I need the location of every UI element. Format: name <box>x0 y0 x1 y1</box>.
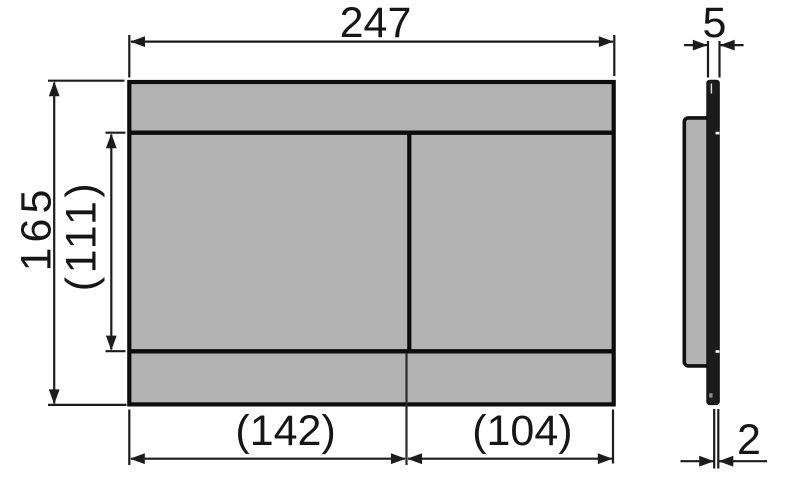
svg-text:(142): (142) <box>235 407 335 455</box>
svg-text:(104): (104) <box>472 407 572 455</box>
svg-text:(111): (111) <box>58 180 106 292</box>
svg-text:5: 5 <box>703 0 727 47</box>
svg-text:165: 165 <box>13 185 61 272</box>
svg-text:247: 247 <box>340 0 412 47</box>
svg-text:2: 2 <box>737 416 761 464</box>
